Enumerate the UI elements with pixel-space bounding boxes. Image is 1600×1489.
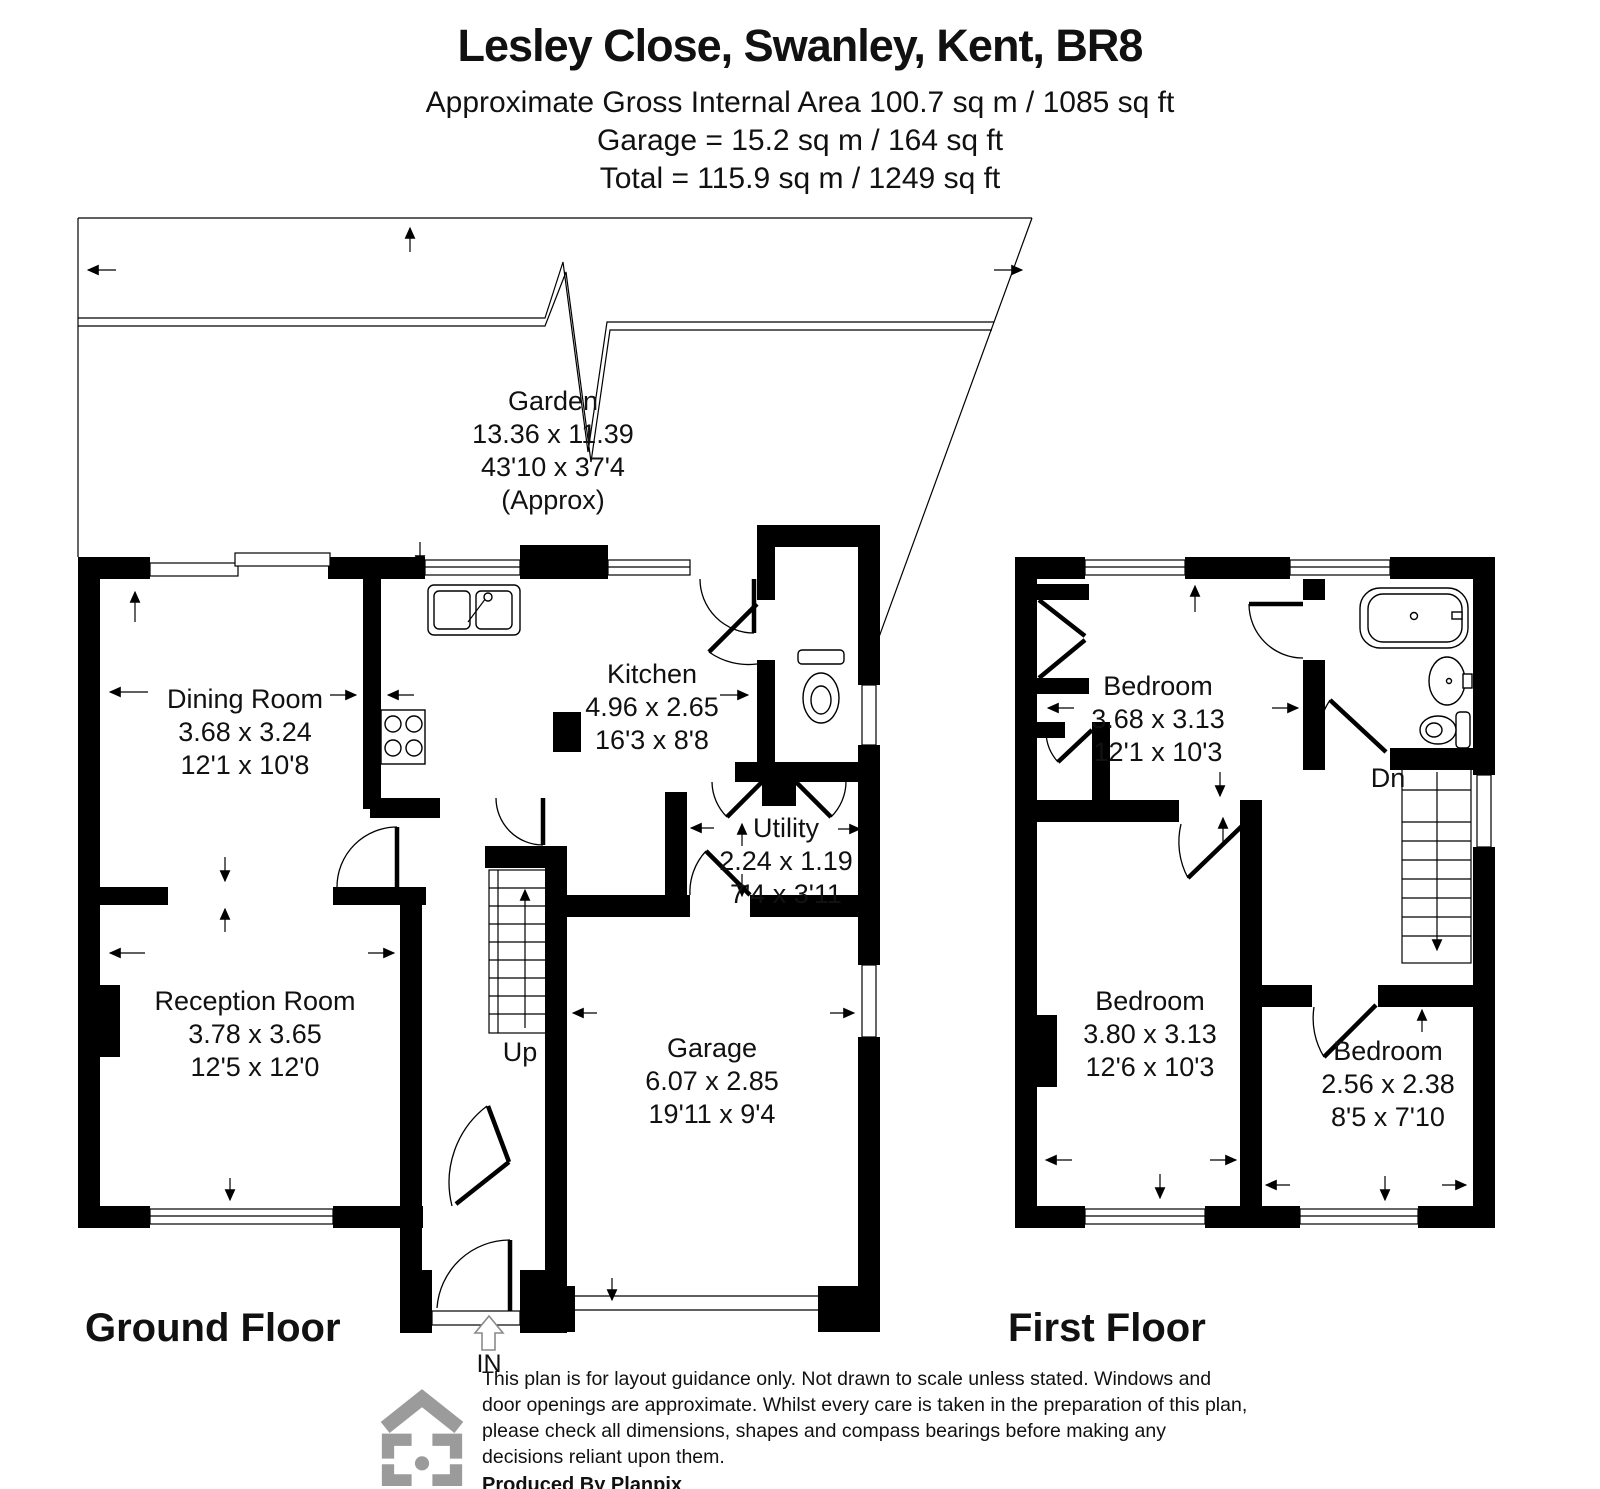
toilet-icon [798,650,844,723]
room-dims-metric: 3.68 x 3.24 [167,716,323,749]
room-dims-imperial: 12'1 x 10'3 [1091,736,1225,769]
stairs-up-label: Up [503,1036,538,1069]
toilet-first-floor-icon [1420,712,1470,748]
footer: This plan is for layout guidance only. N… [482,1366,1252,1489]
room-dims-imperial: 12'5 x 12'0 [154,1051,355,1084]
room-dims-imperial: 12'6 x 10'3 [1083,1051,1217,1084]
room-label-bedroom-2: Bedroom 3.80 x 3.13 12'6 x 10'3 [1083,985,1217,1084]
room-name: Bedroom [1083,985,1217,1018]
first-floor-title: First Floor [1008,1306,1206,1351]
room-name: Utility [719,812,853,845]
stairs-down [1402,760,1471,963]
room-dims-metric: 3.78 x 3.65 [154,1018,355,1051]
room-name: Garden [472,385,634,418]
planpix-logo-icon [372,1384,472,1486]
credit-text: Produced By Planpix [482,1472,1252,1489]
room-dims-metric: 2.56 x 2.38 [1321,1068,1455,1101]
room-name: Garage [645,1032,779,1065]
room-name: Bedroom [1321,1035,1455,1068]
room-label-bedroom-3: Bedroom 2.56 x 2.38 8'5 x 7'10 [1321,1035,1455,1134]
room-dims-imperial: 16'3 x 8'8 [585,724,719,757]
room-dims-metric: 3.68 x 3.13 [1091,703,1225,736]
room-label-dining-room: Dining Room 3.68 x 3.24 12'1 x 10'8 [167,683,323,782]
room-dims-metric: 2.24 x 1.19 [719,845,853,878]
room-label-utility: Utility 2.24 x 1.19 7'4 x 3'11 [719,812,853,911]
room-label-garage: Garage 6.07 x 2.85 19'11 x 9'4 [645,1032,779,1131]
room-label-kitchen: Kitchen 4.96 x 2.65 16'3 x 8'8 [585,658,719,757]
room-dims-imperial: 8'5 x 7'10 [1321,1101,1455,1134]
floorplan-page: Lesley Close, Swanley, Kent, BR8 Approxi… [0,0,1600,1489]
room-dims-metric: 3.80 x 3.13 [1083,1018,1217,1051]
room-dims-metric: 6.07 x 2.85 [645,1065,779,1098]
room-note: (Approx) [472,484,634,517]
basin-icon [1429,657,1472,705]
ground-floor-title: Ground Floor [85,1306,341,1351]
room-dims-imperial: 43'10 x 37'4 [472,451,634,484]
room-dims-imperial: 7'4 x 3'11 [719,878,853,911]
room-name: Reception Room [154,985,355,1018]
bathtub-icon [1360,588,1468,648]
room-dims-metric: 13.36 x 11.39 [472,418,634,451]
room-name: Kitchen [585,658,719,691]
room-label-reception-room: Reception Room 3.78 x 3.65 12'5 x 12'0 [154,985,355,1084]
room-dims-metric: 4.96 x 2.65 [585,691,719,724]
disclaimer-text: This plan is for layout guidance only. N… [482,1366,1252,1470]
room-name: Bedroom [1091,670,1225,703]
room-label-garden: Garden 13.36 x 11.39 43'10 x 37'4 (Appro… [472,385,634,517]
room-label-bedroom-1: Bedroom 3.68 x 3.13 12'1 x 10'3 [1091,670,1225,769]
room-dims-imperial: 19'11 x 9'4 [645,1098,779,1131]
room-dims-imperial: 12'1 x 10'8 [167,749,323,782]
hob-icon [381,710,425,764]
sink-icon [428,585,520,635]
stairs-down-label: Dn [1371,762,1406,795]
room-name: Dining Room [167,683,323,716]
